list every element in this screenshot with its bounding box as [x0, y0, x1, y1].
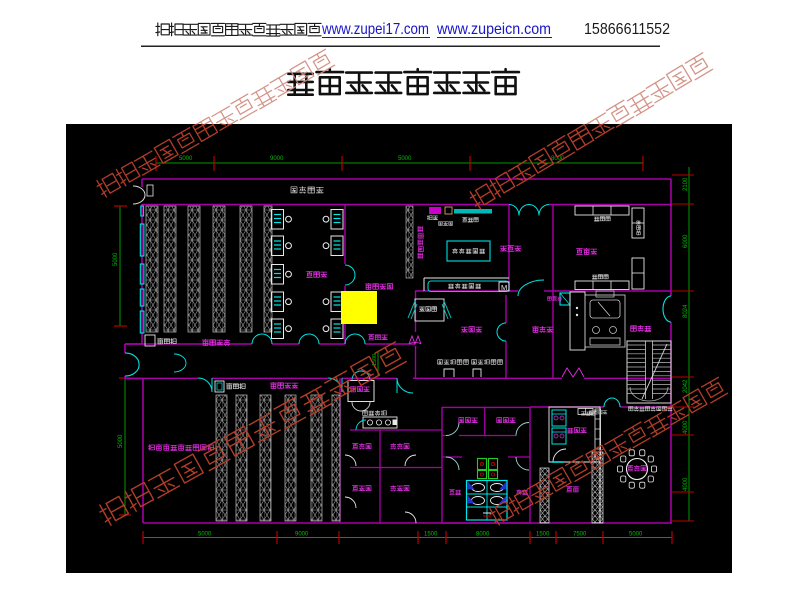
svg-text:2100: 2100	[683, 177, 689, 191]
svg-text:4000: 4000	[683, 477, 689, 491]
svg-text:5000: 5000	[398, 156, 412, 162]
svg-text:8024: 8024	[683, 304, 689, 318]
svg-text:5000: 5000	[179, 156, 193, 162]
svg-text:1500: 1500	[536, 532, 550, 538]
svg-text:7500: 7500	[573, 532, 587, 538]
svg-text:8000: 8000	[476, 532, 490, 538]
svg-text:1500: 1500	[424, 532, 438, 538]
svg-text:9000: 9000	[270, 156, 284, 162]
svg-text:5000: 5000	[113, 252, 119, 266]
svg-text:5000: 5000	[198, 532, 212, 538]
svg-text:5000: 5000	[118, 434, 124, 448]
svg-text:4000: 4000	[683, 420, 689, 434]
svg-text:2042: 2042	[683, 379, 689, 393]
svg-text:6000: 6000	[683, 234, 689, 248]
svg-text:15866611552: 15866611552	[584, 21, 670, 38]
svg-text:9000: 9000	[295, 532, 309, 538]
svg-text:5000: 5000	[629, 532, 643, 538]
svg-text:M: M	[501, 283, 507, 292]
svg-text:www.zupei17.com: www.zupei17.com	[321, 21, 429, 38]
svg-text:www.zupeicn.com: www.zupeicn.com	[436, 21, 551, 38]
